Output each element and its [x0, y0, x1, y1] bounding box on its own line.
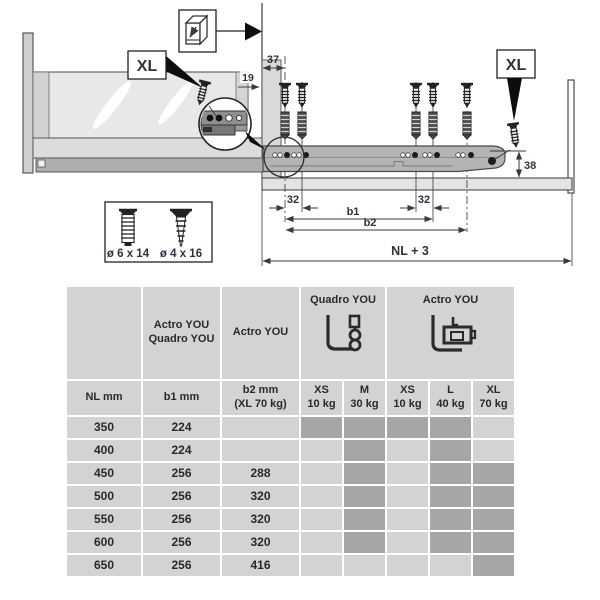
screw-icon: [410, 84, 422, 108]
availability-cell: [429, 531, 472, 554]
availability-cell: [429, 462, 472, 485]
b1-cell: 256: [142, 554, 221, 577]
direction-arrow-icon: [216, 23, 262, 41]
screw-small-label: ø 6 x 14: [107, 248, 150, 260]
availability-cell: [472, 416, 515, 439]
availability-cell: [429, 416, 472, 439]
subheader-nl-label: NL mm: [85, 391, 122, 403]
subheader-b2-line2: (XL 70 kg): [234, 398, 286, 410]
header-b2-product: Actro YOU: [221, 286, 300, 380]
header-b1-line1: Actro YOU: [154, 319, 209, 331]
table-subheader-row: NL mm b1 mm b2 mm (XL 70 kg) XS10 kg M30…: [66, 380, 515, 416]
spec-table: Actro YOU Quadro YOU Actro YOU Quadro YO…: [65, 285, 516, 578]
size-header-xl-actro: XL70 kg: [472, 380, 515, 416]
subheader-b1-label: b1 mm: [164, 391, 199, 403]
dowel-icon: [298, 112, 306, 139]
availability-cell: [386, 531, 429, 554]
dowel-icon: [463, 112, 471, 139]
dowel-icon: [281, 112, 289, 139]
availability-cell: [429, 485, 472, 508]
dowel-icon: [412, 112, 420, 139]
dim-nl3: NL + 3: [263, 244, 571, 261]
drawer-runner: [263, 146, 505, 172]
availability-cell: [300, 485, 343, 508]
screw-icon: [461, 84, 473, 108]
availability-cell: [343, 416, 386, 439]
xl-text: XL: [137, 58, 158, 75]
drawer-rail-profile: [36, 158, 263, 172]
xl-text: XL: [506, 57, 527, 74]
b2-cell: [221, 416, 300, 439]
size-label: XS: [314, 384, 329, 396]
size-label: XS: [400, 384, 415, 396]
header-b1-products: Actro YOU Quadro YOU: [142, 286, 221, 380]
header-group-actro: Actro YOU: [386, 286, 515, 380]
catalog-page: XL XL 37 19 38 32: [0, 0, 600, 600]
b1-cell: 224: [142, 416, 221, 439]
size-header-xs-actro: XS10 kg: [386, 380, 429, 416]
availability-cell: [472, 462, 515, 485]
spec-table-body: 3502244002244502562885002563205502563206…: [66, 416, 515, 577]
subheader-b2-line1: b2 mm: [243, 384, 278, 396]
svg-text:37: 37: [267, 54, 279, 66]
load-label: 10 kg: [307, 398, 335, 410]
table-row: 650256416: [66, 554, 515, 577]
availability-cell: [300, 508, 343, 531]
availability-cell: [300, 531, 343, 554]
header-group-quadro: Quadro YOU: [300, 286, 386, 380]
b1-cell: 256: [142, 485, 221, 508]
dim-32-right: 32: [400, 194, 449, 208]
availability-cell: [429, 439, 472, 462]
availability-cell: [343, 531, 386, 554]
size-header-l-actro: L40 kg: [429, 380, 472, 416]
nl-cell: 600: [66, 531, 142, 554]
availability-cell: [429, 508, 472, 531]
quadro-profile-icon: [319, 312, 367, 356]
svg-text:NL + 3: NL + 3: [391, 244, 429, 258]
availability-cell: [386, 416, 429, 439]
availability-cell: [472, 531, 515, 554]
drawer-front-panel: [23, 33, 33, 173]
subheader-nl: NL mm: [66, 380, 142, 416]
nl-cell: 550: [66, 508, 142, 531]
nl-cell: 500: [66, 485, 142, 508]
b1-cell: 256: [142, 531, 221, 554]
screw-icon: [427, 84, 439, 108]
nl-cell: 450: [66, 462, 142, 485]
availability-cell: [386, 462, 429, 485]
size-label: XL: [486, 384, 500, 396]
svg-text:19: 19: [242, 72, 254, 84]
availability-cell: [386, 554, 429, 577]
availability-cell: [386, 508, 429, 531]
nl-cell: 400: [66, 439, 142, 462]
mounting-screws: [279, 84, 473, 139]
screw-icon: [507, 123, 522, 148]
b2-cell: 320: [221, 531, 300, 554]
b2-cell: 416: [221, 554, 300, 577]
cabinet-bottom-panel: [262, 178, 572, 190]
availability-cell: [386, 485, 429, 508]
screw-legend-box: ø 6 x 14 ø 4 x 16: [105, 202, 212, 262]
load-label: 70 kg: [479, 398, 507, 410]
cabinet-back-panel: [568, 80, 574, 193]
screw-large-label: ø 4 x 16: [160, 248, 202, 260]
table-row: 450256288: [66, 462, 515, 485]
size-header-xs-quadro: XS10 kg: [300, 380, 343, 416]
table-row: 500256320: [66, 485, 515, 508]
b2-cell: 320: [221, 485, 300, 508]
table-row: 550256320: [66, 508, 515, 531]
availability-cell: [429, 554, 472, 577]
load-label: 10 kg: [393, 398, 421, 410]
availability-cell: [343, 439, 386, 462]
actro-profile-icon: [424, 312, 478, 356]
availability-cell: [386, 439, 429, 462]
b1-cell: 256: [142, 508, 221, 531]
dim-32-left: 32: [269, 194, 318, 208]
technical-drawing: XL XL 37 19 38 32: [0, 0, 600, 278]
availability-cell: [343, 485, 386, 508]
b1-cell: 224: [142, 439, 221, 462]
availability-cell: [300, 462, 343, 485]
svg-text:b2: b2: [364, 217, 377, 229]
size-label: M: [360, 384, 369, 396]
cabinet-icon: [179, 10, 216, 52]
availability-cell: [300, 416, 343, 439]
availability-cell: [472, 508, 515, 531]
svg-text:32: 32: [418, 194, 430, 206]
header-b1-line2: Quadro YOU: [149, 333, 215, 345]
table-row: 600256320: [66, 531, 515, 554]
availability-cell: [300, 554, 343, 577]
b1-cell: 256: [142, 462, 221, 485]
availability-cell: [472, 485, 515, 508]
subheader-b1: b1 mm: [142, 380, 221, 416]
availability-cell: [472, 439, 515, 462]
screw-icon: [296, 84, 308, 108]
load-label: 40 kg: [436, 398, 464, 410]
header-empty-cell: [66, 286, 142, 380]
svg-text:32: 32: [287, 194, 299, 206]
svg-text:38: 38: [524, 160, 536, 172]
actro-group-label: Actro YOU: [387, 294, 514, 308]
availability-cell: [343, 554, 386, 577]
svg-text:b1: b1: [347, 206, 360, 218]
b2-cell: 320: [221, 508, 300, 531]
availability-cell: [343, 508, 386, 531]
table-row: 400224: [66, 439, 515, 462]
size-header-m-quadro: M30 kg: [343, 380, 386, 416]
quadro-group-label: Quadro YOU: [301, 294, 385, 308]
size-label: L: [447, 384, 454, 396]
header-b2-label: Actro YOU: [233, 326, 288, 338]
xl-label-right: XL: [495, 50, 535, 159]
dowel-icon: [429, 112, 437, 139]
table-row: 350224: [66, 416, 515, 439]
screw-euro-icon: [119, 210, 137, 246]
magnifier-detail: [199, 98, 266, 150]
b2-cell: 288: [221, 462, 300, 485]
nl-cell: 650: [66, 554, 142, 577]
nl-cell: 350: [66, 416, 142, 439]
availability-cell: [343, 462, 386, 485]
availability-cell: [300, 439, 343, 462]
load-label: 30 kg: [350, 398, 378, 410]
b2-cell: [221, 439, 300, 462]
table-group-header-row: Actro YOU Quadro YOU Actro YOU Quadro YO…: [66, 286, 515, 380]
subheader-b2: b2 mm (XL 70 kg): [221, 380, 300, 416]
availability-cell: [472, 554, 515, 577]
